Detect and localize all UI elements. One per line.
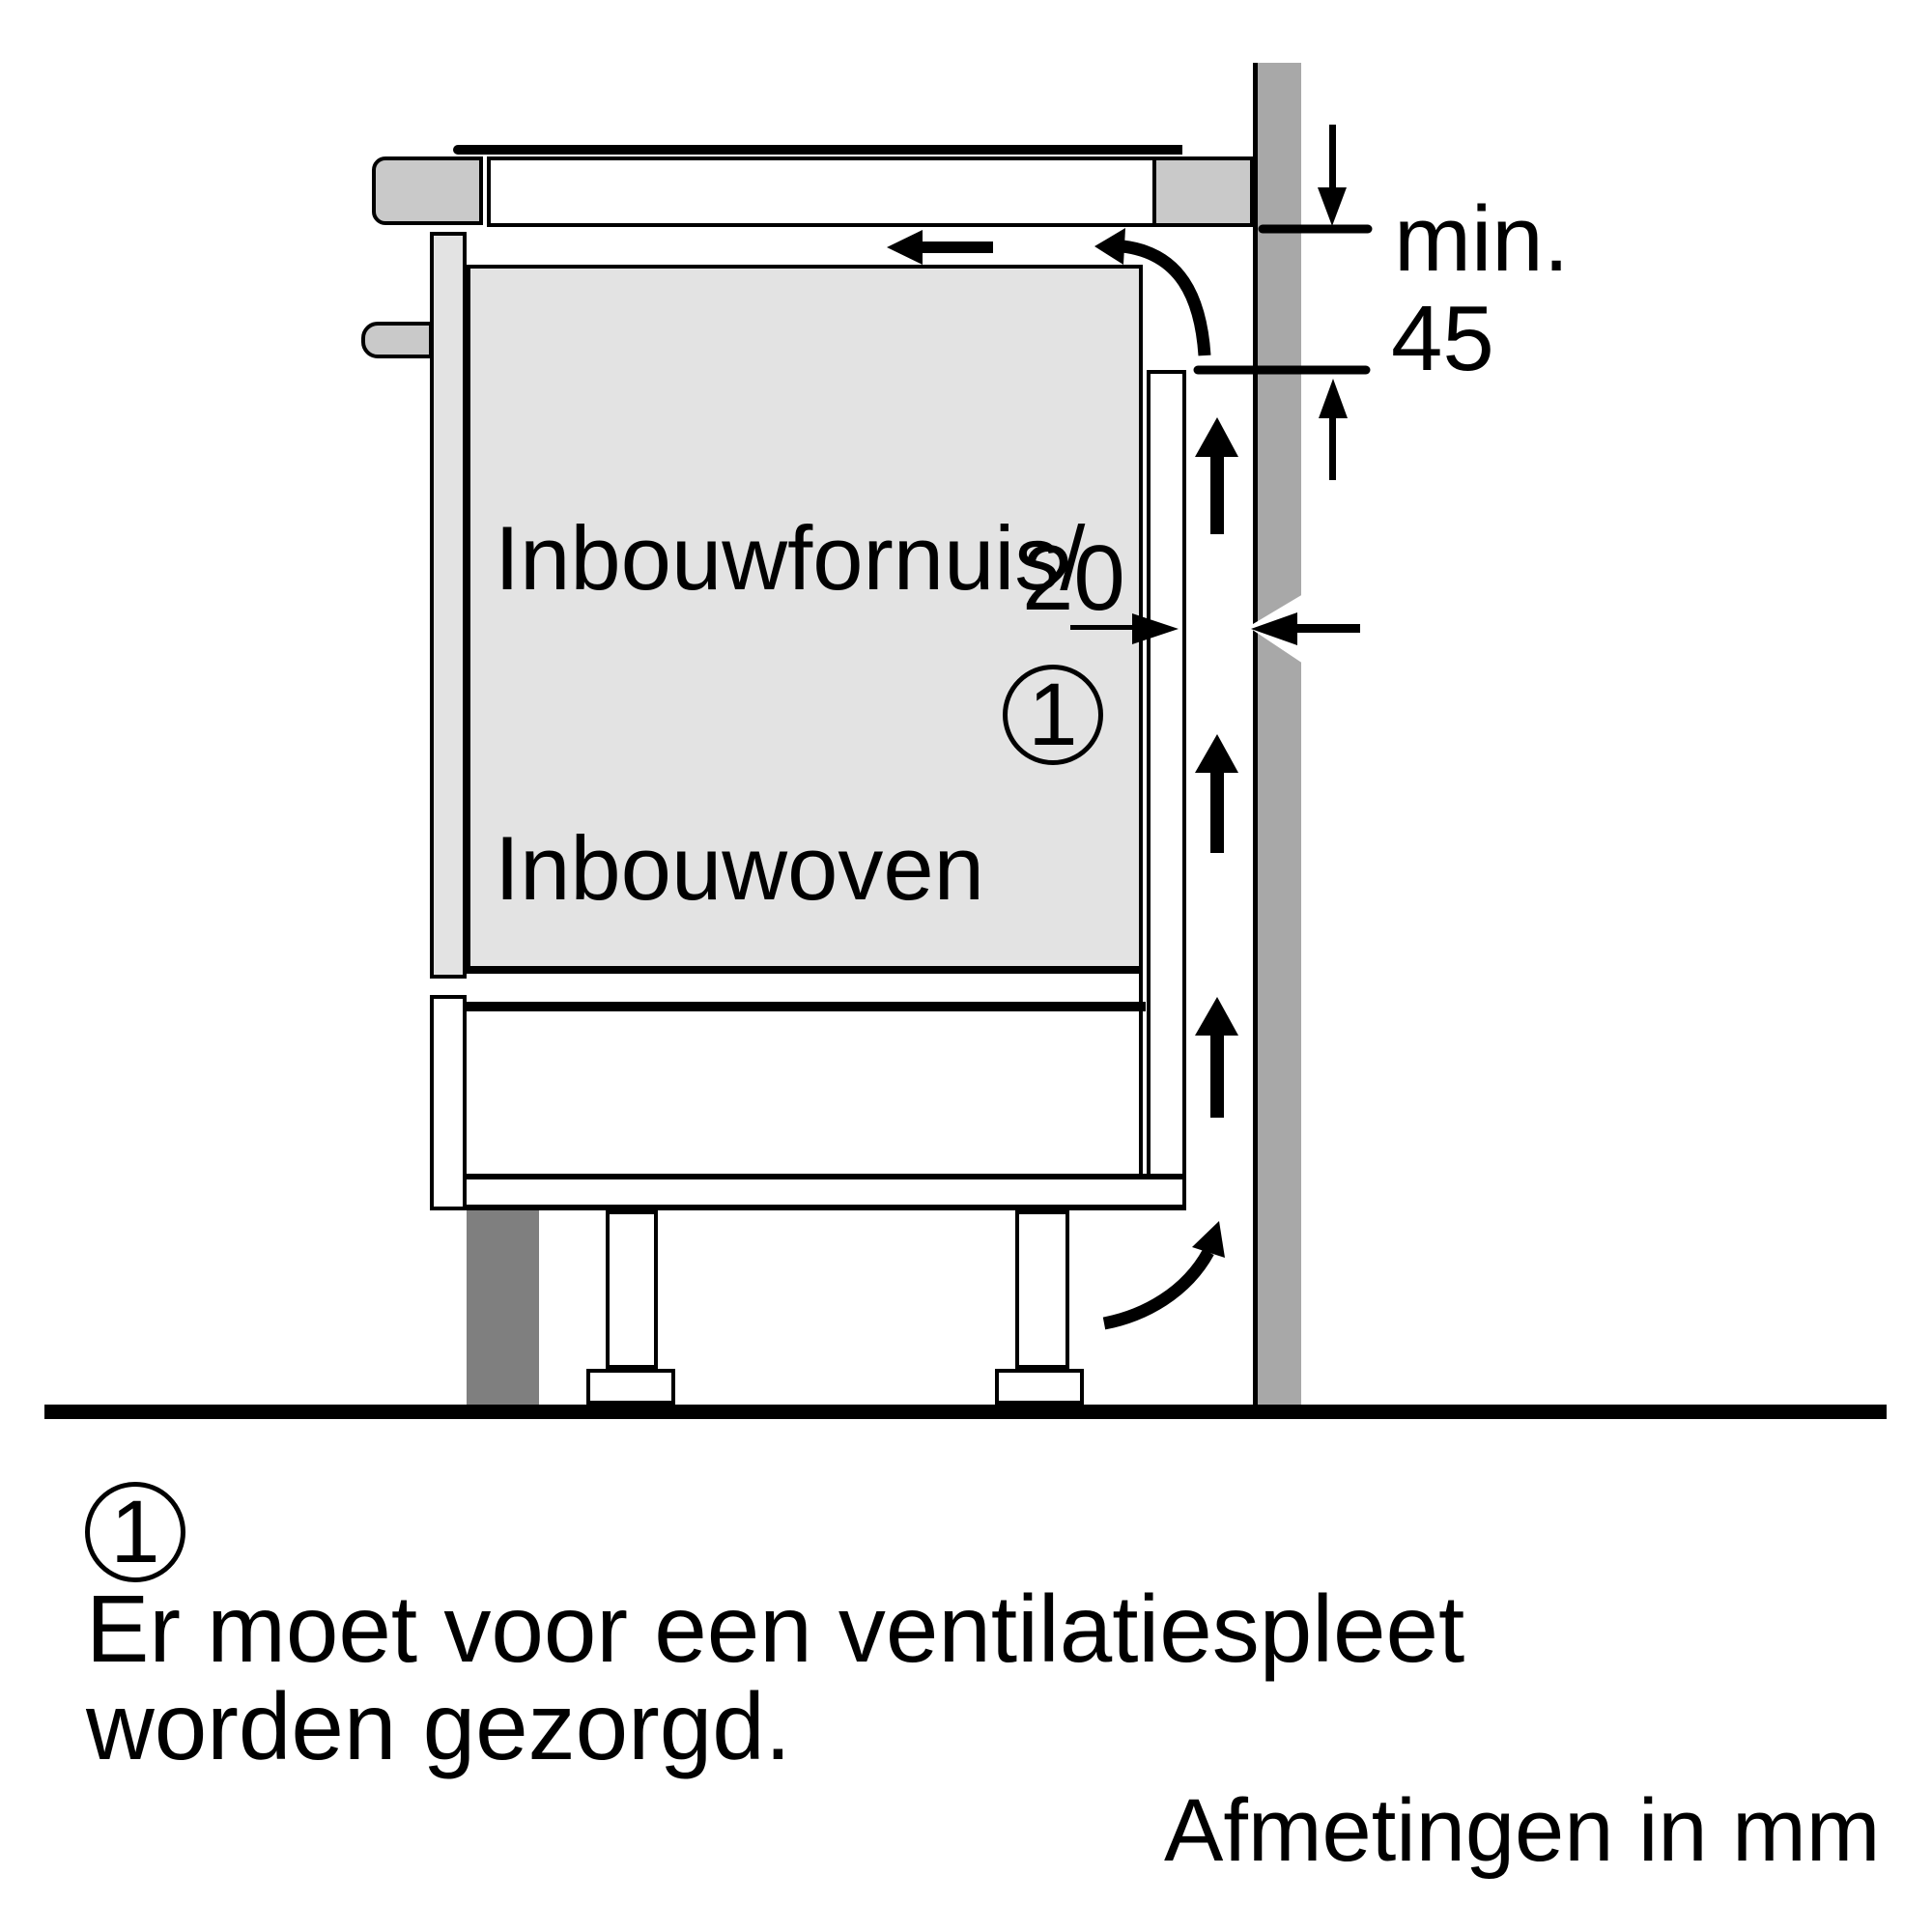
min45-up-arrow-shaft [1329, 416, 1336, 480]
min-value: 45 [1391, 293, 1494, 385]
airflow-up-arrow-1 [1195, 417, 1238, 534]
installation-diagram: 1 Inbouwfornuis/ Inbouwoven min. 45 20 1… [0, 0, 1932, 1932]
airflow-curved-arrow-top [1094, 228, 1205, 355]
min-label: min. [1394, 193, 1569, 286]
footnote-line2: worden gezorgd. [86, 1679, 791, 1774]
min45-down-arrowhead [1318, 187, 1347, 226]
airflow-curved-arrow-bottom [1104, 1221, 1225, 1323]
rear-gap-value: 20 [1022, 532, 1125, 625]
airflow-up-arrow-3 [1195, 997, 1238, 1118]
gap-dim-right-arrowhead [1132, 613, 1179, 644]
min45-up-arrowhead [1319, 379, 1348, 418]
appliance-label-line1: Inbouwfornuis/ [495, 506, 1085, 610]
footnote-number: 1 [110, 1482, 159, 1583]
appliance-label-line2: Inbouwoven [495, 816, 1085, 920]
gap-dim-left-arrow-shaft [1297, 624, 1360, 633]
min45-down-arrow-shaft [1329, 125, 1336, 189]
callout-circle-footnote: 1 [85, 1482, 185, 1582]
footnote-line1: Er moet voor een ventilatiespleet [86, 1581, 1464, 1676]
units-note: Afmetingen in mm [1164, 1786, 1880, 1875]
airflow-left-arrow [887, 230, 993, 265]
appliance-label: Inbouwfornuis/ Inbouwoven [495, 299, 1085, 1126]
airflow-up-arrow-2 [1195, 734, 1238, 853]
